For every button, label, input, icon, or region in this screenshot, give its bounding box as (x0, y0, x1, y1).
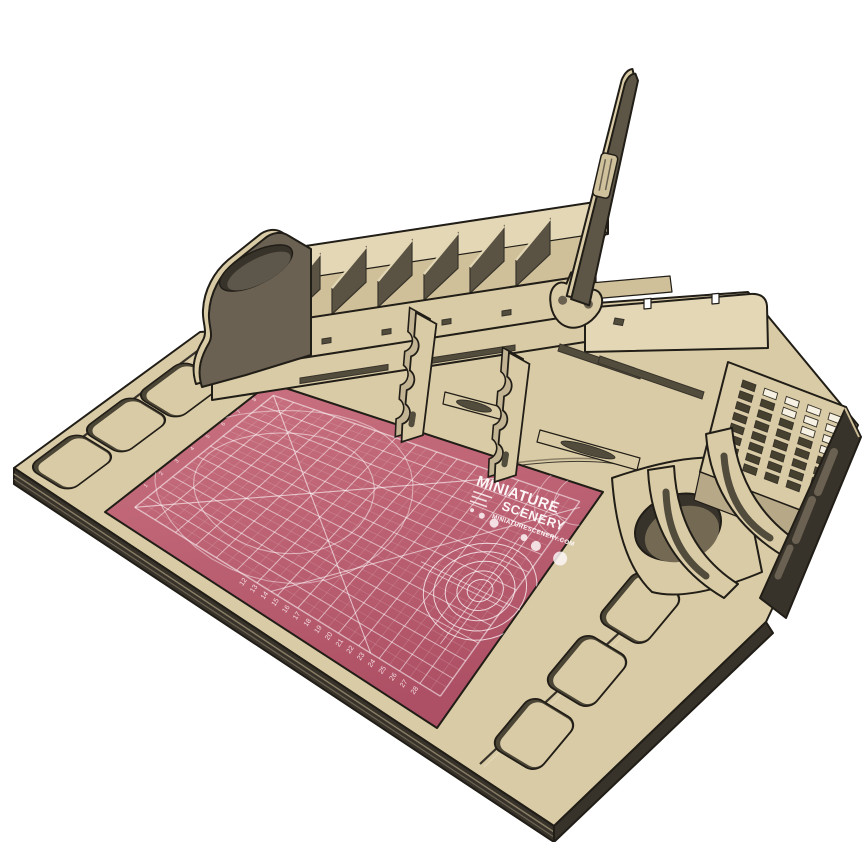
back-wall-notch (712, 293, 719, 304)
product-render: 1213141516171819202122232425262728123456… (0, 0, 867, 842)
back-wall-notch (644, 298, 651, 309)
workstation-illustration: 1213141516171819202122232425262728123456… (0, 0, 867, 842)
